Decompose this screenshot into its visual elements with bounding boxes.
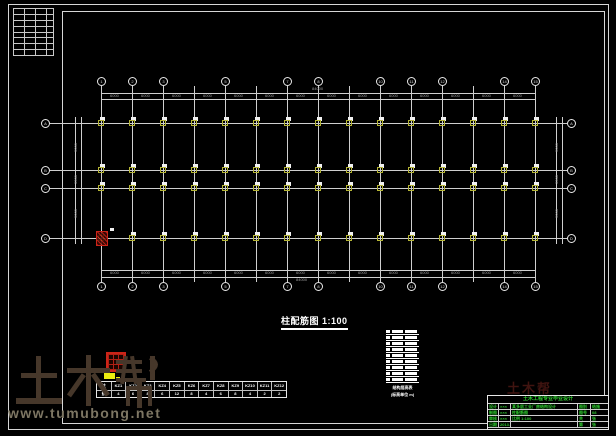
axis-bubble-top: 10	[376, 77, 385, 86]
title-block-cell: 柱配筋图	[511, 410, 577, 415]
dimension-text-bottom: 6000	[420, 271, 429, 275]
signature-grid-cell	[36, 9, 46, 14]
schedule-cell: -0.25	[392, 378, 403, 381]
column-outline	[98, 120, 104, 126]
dimension-text-right: 9000	[555, 209, 559, 218]
column-outline	[439, 185, 445, 191]
legend-cell: KZ6	[185, 382, 199, 390]
schedule-cell: 3.6	[405, 348, 417, 351]
dimension-text-top: 6000	[110, 94, 119, 98]
schedule-cell: 6.95	[392, 366, 403, 369]
axis-bubble-left: C	[41, 184, 50, 193]
dimension-text-top: 6000	[482, 94, 491, 98]
dimension-text-bottom: 6000	[327, 271, 336, 275]
signature-grid-cell	[25, 27, 35, 32]
column-outline	[253, 120, 259, 126]
column-outline	[98, 185, 104, 191]
legend-cell: 12	[170, 391, 184, 397]
dimension-text-bottom: 6000	[482, 271, 491, 275]
axis-bubble-top: 11	[407, 77, 416, 86]
dimension-text-top: 6000	[203, 94, 212, 98]
legend-cell: KZ5	[170, 382, 184, 390]
axis-bubble-top: 3	[159, 77, 168, 86]
column-outline	[377, 185, 383, 191]
dimension-text-top: 6000	[358, 94, 367, 98]
dimension-text-top: 6000	[141, 94, 150, 98]
schedule-caption-line2: (标高单位 m)	[386, 392, 419, 397]
plan-title: 柱配筋图 1:100	[281, 314, 348, 330]
column-outline	[501, 120, 507, 126]
axis-bubble-bottom: 3	[159, 282, 168, 291]
dimension-line	[101, 277, 535, 278]
cad-drawing-canvas: 11223355778810101111121214141515AABBCCDD…	[0, 0, 616, 436]
signature-grid-cell	[25, 50, 35, 55]
schedule-row: -1-0.253.6	[386, 377, 419, 383]
title-block-cell: 共	[578, 416, 590, 421]
dimension-text-bottom: 6000	[234, 271, 243, 275]
dimension-text-top: 6000	[327, 94, 336, 98]
title-block-cell: ×××	[499, 410, 510, 415]
column-outline	[129, 185, 135, 191]
schedule-cell: 24.95	[392, 336, 403, 339]
signature-grid-cell	[25, 21, 35, 26]
column-outline	[532, 167, 538, 173]
signature-grid-cell	[36, 33, 46, 38]
column-outline	[470, 120, 476, 126]
axis-bubble-bottom: 11	[407, 282, 416, 291]
column-outline	[191, 167, 197, 173]
dimension-text-top: 6000	[513, 94, 522, 98]
title-block-cell	[511, 422, 577, 427]
column-outline	[160, 167, 166, 173]
title-block-cell: 结施	[591, 404, 608, 409]
dimension-text-left: 3300	[74, 175, 78, 184]
column-outline	[160, 185, 166, 191]
signature-grid-cell	[14, 33, 24, 38]
column-outline	[377, 167, 383, 173]
signature-grid-cell	[14, 27, 24, 32]
highlighted-column	[96, 231, 108, 246]
signature-grid-cell	[25, 44, 35, 49]
schedule-cell: 3.6	[405, 366, 417, 369]
schedule-header-cell: 层高	[405, 330, 417, 333]
dimension-text-bottom: 6000	[389, 271, 398, 275]
title-block-cell: ×××	[499, 416, 510, 421]
schedule-cell: 10.55	[392, 360, 403, 363]
signature-grid-cell	[25, 33, 35, 38]
schedule-cell: 1	[386, 372, 390, 375]
signature-grid	[13, 8, 54, 56]
column-outline	[377, 235, 383, 241]
legend-cell: 8	[229, 391, 243, 397]
signature-grid-cell	[25, 15, 35, 20]
axis-bubble-right: A	[567, 119, 576, 128]
dimension-text-right: 3300	[555, 175, 559, 184]
dimension-text-top: 6000	[265, 94, 274, 98]
signature-grid-cell	[25, 38, 35, 43]
column-outline	[408, 235, 414, 241]
column-outline	[253, 167, 259, 173]
axis-bubble-top: 2	[128, 77, 137, 86]
schedule-cell: 5	[386, 348, 390, 351]
column-outline	[160, 120, 166, 126]
column-outline	[501, 235, 507, 241]
column-outline	[501, 167, 507, 173]
column-outline	[129, 167, 135, 173]
dimension-text-top: 6000	[389, 94, 398, 98]
title-block-cell: 2013.6	[499, 422, 510, 427]
title-block-header: 土木工程专业毕业设计	[488, 396, 608, 404]
title-block-cell: 张	[591, 422, 608, 427]
signature-grid-cell	[14, 38, 24, 43]
column-outline	[284, 167, 290, 173]
schedule-cell: 4	[386, 354, 390, 357]
column-outline	[532, 185, 538, 191]
axis-bubble-top: 8	[314, 77, 323, 86]
column-annotation-blob	[110, 228, 114, 231]
signature-grid-cell	[47, 33, 53, 38]
column-outline	[284, 120, 290, 126]
title-block-cell: 图号	[578, 410, 590, 415]
legend-cell: 2	[258, 391, 272, 397]
dimension-text-bottom: 6000	[296, 271, 305, 275]
column-outline	[439, 235, 445, 241]
brand-watermark-glyphs	[14, 352, 164, 410]
axis-bubble-bottom: 12	[438, 282, 447, 291]
column-outline	[532, 235, 538, 241]
schedule-caption-line1: 结构层高表	[386, 385, 419, 390]
axis-bubble-bottom: 15	[531, 282, 540, 291]
dimension-text-bottom: 6000	[141, 271, 150, 275]
signature-grid-cell	[36, 38, 46, 43]
legend-cell: 6	[214, 391, 228, 397]
axis-bubble-left: A	[41, 119, 50, 128]
axis-bubble-top: 7	[283, 77, 292, 86]
column-outline	[284, 185, 290, 191]
signature-grid-cell	[36, 21, 46, 26]
legend-cell: 4	[199, 391, 213, 397]
axis-bubble-right: C	[567, 184, 576, 193]
dimension-overall-bottom: 84000	[296, 278, 307, 282]
grid-line-horizontal	[49, 188, 567, 189]
dimension-text-left: 9000	[74, 143, 78, 152]
title-block-cell: 制图	[488, 410, 498, 415]
title-block-row: 日期2013.6第张	[488, 422, 608, 428]
schedule-cell: 3.6	[405, 354, 417, 357]
schedule-header-cell: 标高	[392, 330, 403, 333]
schedule-cell: 3.6	[405, 378, 417, 381]
title-block-cell: ×××	[499, 404, 510, 409]
signature-grid-cell	[47, 21, 53, 26]
dimension-line	[101, 270, 535, 271]
schedule-cell: 2	[386, 366, 390, 369]
schedule-cell: 3.6	[405, 342, 417, 345]
signature-grid-cell	[47, 38, 53, 43]
axis-bubble-bottom: 1	[97, 282, 106, 291]
column-outline	[470, 167, 476, 173]
dimension-text-bottom: 6000	[110, 271, 119, 275]
column-outline	[346, 235, 352, 241]
column-outline	[98, 167, 104, 173]
legend-cell: KZ12	[272, 382, 286, 390]
axis-bubble-top: 14	[500, 77, 509, 86]
column-outline	[346, 167, 352, 173]
axis-bubble-left: B	[41, 166, 50, 175]
column-outline	[129, 235, 135, 241]
column-outline	[222, 235, 228, 241]
column-outline	[315, 120, 321, 126]
axis-bubble-top: 15	[531, 77, 540, 86]
legend-cell: KZ8	[214, 382, 228, 390]
legend-cell: KZ7	[199, 382, 213, 390]
schedule-cell: 7	[386, 336, 390, 339]
dimension-text-top: 6000	[234, 94, 243, 98]
axis-bubble-bottom: 10	[376, 282, 385, 291]
column-outline	[253, 235, 259, 241]
column-outline	[470, 235, 476, 241]
axis-bubble-bottom: 14	[500, 282, 509, 291]
signature-grid-cell	[47, 15, 53, 20]
dimension-line	[562, 117, 563, 244]
axis-bubble-top: 12	[438, 77, 447, 86]
column-outline	[439, 120, 445, 126]
column-outline	[222, 185, 228, 191]
schedule-cell: -1	[386, 378, 390, 381]
signature-grid-cell	[14, 44, 24, 49]
legend-cell: 4	[243, 391, 257, 397]
schedule-cell: 14.15	[392, 354, 403, 357]
column-outline	[439, 167, 445, 173]
signature-grid-cell	[47, 27, 53, 32]
schedule-cell: 17.75	[392, 348, 403, 351]
title-block-cell: 某多层工业厂房结构设计	[511, 404, 577, 409]
legend-cell: KZ11	[258, 382, 272, 390]
title-block-cell: 日期	[488, 422, 498, 427]
title-block-body: 设计×××某多层工业厂房结构设计图别结施制图×××柱配筋图图号08审核×××比例…	[488, 404, 608, 428]
column-outline	[129, 120, 135, 126]
column-outline	[160, 235, 166, 241]
column-outline	[532, 120, 538, 126]
signature-grid-cell	[47, 44, 53, 49]
column-outline	[377, 120, 383, 126]
axis-bubble-bottom: 7	[283, 282, 292, 291]
column-outline	[408, 185, 414, 191]
dimension-overall-top: 84000	[312, 87, 323, 91]
legend-cell: 2	[272, 391, 286, 397]
signature-grid-cell	[14, 21, 24, 26]
column-outline	[315, 167, 321, 173]
signature-grid-cell	[14, 50, 24, 55]
column-outline	[501, 185, 507, 191]
column-outline	[284, 235, 290, 241]
schedule-table: 层标高层高724.953.6621.353.6517.753.6414.153.…	[386, 329, 419, 397]
schedule-cell: 3.6	[405, 336, 417, 339]
column-outline	[191, 120, 197, 126]
title-block-cell: 08	[591, 410, 608, 415]
dimension-text-right: 9000	[555, 143, 559, 152]
title-block-cell: 第	[578, 422, 590, 427]
title-block-cell: 比例 1:100	[511, 416, 577, 421]
dimension-text-bottom: 6000	[265, 271, 274, 275]
dimension-text-bottom: 6000	[203, 271, 212, 275]
dimension-text-bottom: 6000	[358, 271, 367, 275]
column-outline	[191, 235, 197, 241]
column-outline	[315, 235, 321, 241]
axis-bubble-bottom: 8	[314, 282, 323, 291]
schedule-cell: 21.35	[392, 342, 403, 345]
signature-grid-cell	[36, 27, 46, 32]
signature-grid-cell	[14, 9, 24, 14]
legend-cell: KZ10	[243, 382, 257, 390]
legend-cell: 8	[185, 391, 199, 397]
schedule-cell: 3.35	[392, 372, 403, 375]
column-outline	[408, 120, 414, 126]
title-block-cell: 图别	[578, 404, 590, 409]
signature-grid-cell	[47, 9, 53, 14]
column-outline	[470, 185, 476, 191]
dimension-text-bottom: 6000	[513, 271, 522, 275]
schedule-cell: 6	[386, 342, 390, 345]
grid-line-horizontal	[49, 238, 567, 239]
dimension-text-top: 6000	[296, 94, 305, 98]
axis-bubble-left: D	[41, 234, 50, 243]
column-outline	[315, 185, 321, 191]
dimension-text-top: 6000	[451, 94, 460, 98]
axis-bubble-right: B	[567, 166, 576, 175]
dimension-text-left: 9000	[74, 209, 78, 218]
signature-grid-cell	[36, 50, 46, 55]
column-outline	[222, 167, 228, 173]
title-block-cell: 设计	[488, 404, 498, 409]
dimension-line	[101, 99, 535, 100]
column-outline	[408, 167, 414, 173]
signature-grid-cell	[25, 9, 35, 14]
axis-bubble-top: 1	[97, 77, 106, 86]
column-outline	[346, 185, 352, 191]
dimension-line	[101, 93, 535, 94]
dimension-text-bottom: 6000	[172, 271, 181, 275]
axis-bubble-top: 5	[221, 77, 230, 86]
column-outline	[191, 185, 197, 191]
column-outline	[222, 120, 228, 126]
dimension-text-top: 6000	[420, 94, 429, 98]
legend-cell: KZ9	[229, 382, 243, 390]
schedule-header-cell: 层	[386, 330, 390, 333]
column-outline	[253, 185, 259, 191]
grid-line-horizontal	[49, 123, 567, 124]
watermark-url: www.tumubong.net	[8, 405, 161, 421]
signature-grid-cell	[14, 15, 24, 20]
dimension-text-top: 6000	[172, 94, 181, 98]
title-block-cell: 张	[591, 416, 608, 421]
dimension-line	[81, 117, 82, 244]
signature-grid-cell	[36, 15, 46, 20]
schedule-cell: 3.6	[405, 360, 417, 363]
signature-grid-cell	[47, 50, 53, 55]
signature-grid-cell	[36, 44, 46, 49]
grid-line-horizontal	[49, 170, 567, 171]
axis-bubble-right: D	[567, 234, 576, 243]
dimension-text-bottom: 6000	[451, 271, 460, 275]
schedule-cell: 3	[386, 360, 390, 363]
schedule-cell: 3.6	[405, 372, 417, 375]
axis-bubble-bottom: 5	[221, 282, 230, 291]
axis-bubble-bottom: 2	[128, 282, 137, 291]
title-block: 土木工程专业毕业设计 设计×××某多层工业厂房结构设计图别结施制图×××柱配筋图…	[487, 395, 609, 430]
title-block-cell: 审核	[488, 416, 498, 421]
column-outline	[346, 120, 352, 126]
